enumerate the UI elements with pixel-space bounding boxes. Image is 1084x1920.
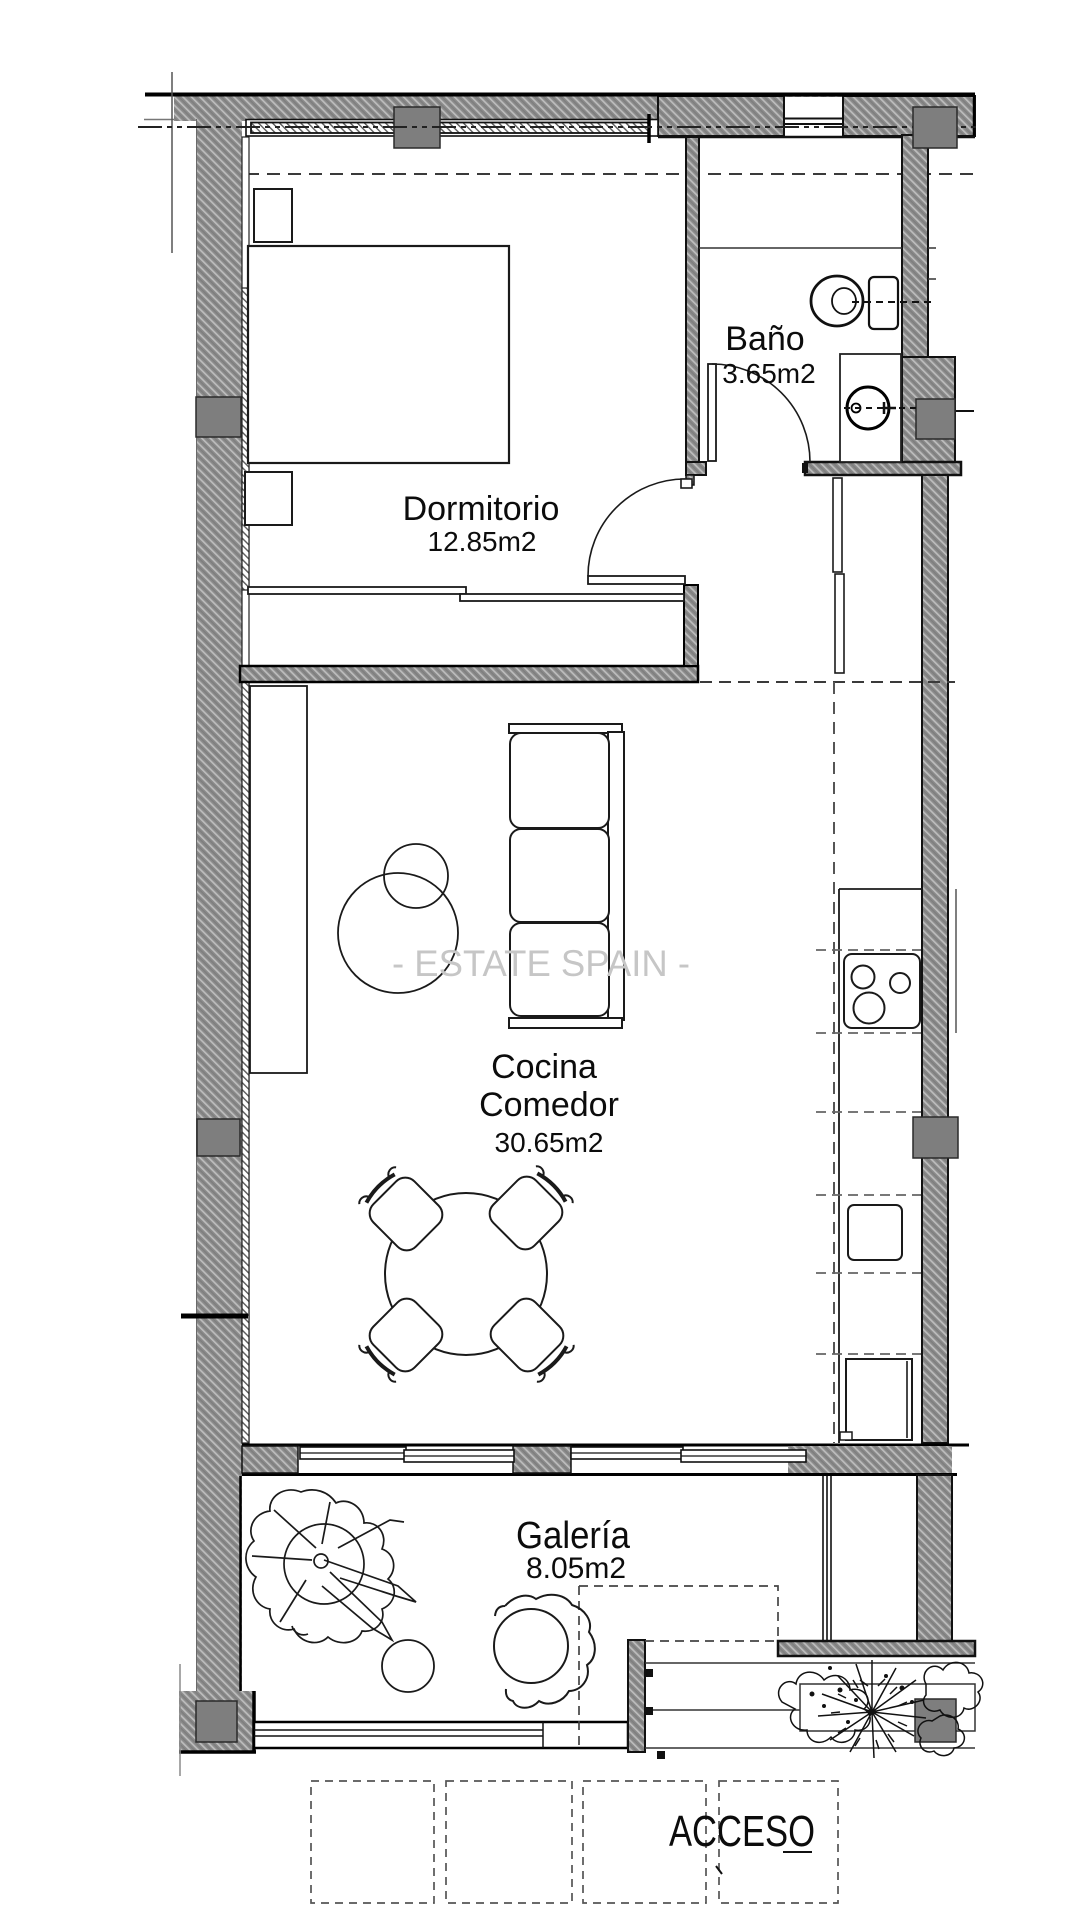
svg-text:12.85m2: 12.85m2	[428, 526, 537, 557]
svg-text:- ESTATE SPAIN -: - ESTATE SPAIN -	[392, 943, 690, 984]
svg-text:Cocina: Cocina	[491, 1048, 597, 1086]
svg-text:Galería: Galería	[516, 1515, 631, 1557]
svg-text:Comedor: Comedor	[479, 1086, 619, 1124]
svg-text:Dormitorio: Dormitorio	[403, 490, 560, 528]
svg-text:3.65m2: 3.65m2	[722, 358, 815, 389]
svg-text:30.65m2: 30.65m2	[495, 1127, 604, 1158]
svg-text:Baño: Baño	[725, 320, 804, 358]
svg-text:ACCESO: ACCESO	[669, 1807, 815, 1856]
svg-text:8.05m2: 8.05m2	[526, 1552, 626, 1585]
